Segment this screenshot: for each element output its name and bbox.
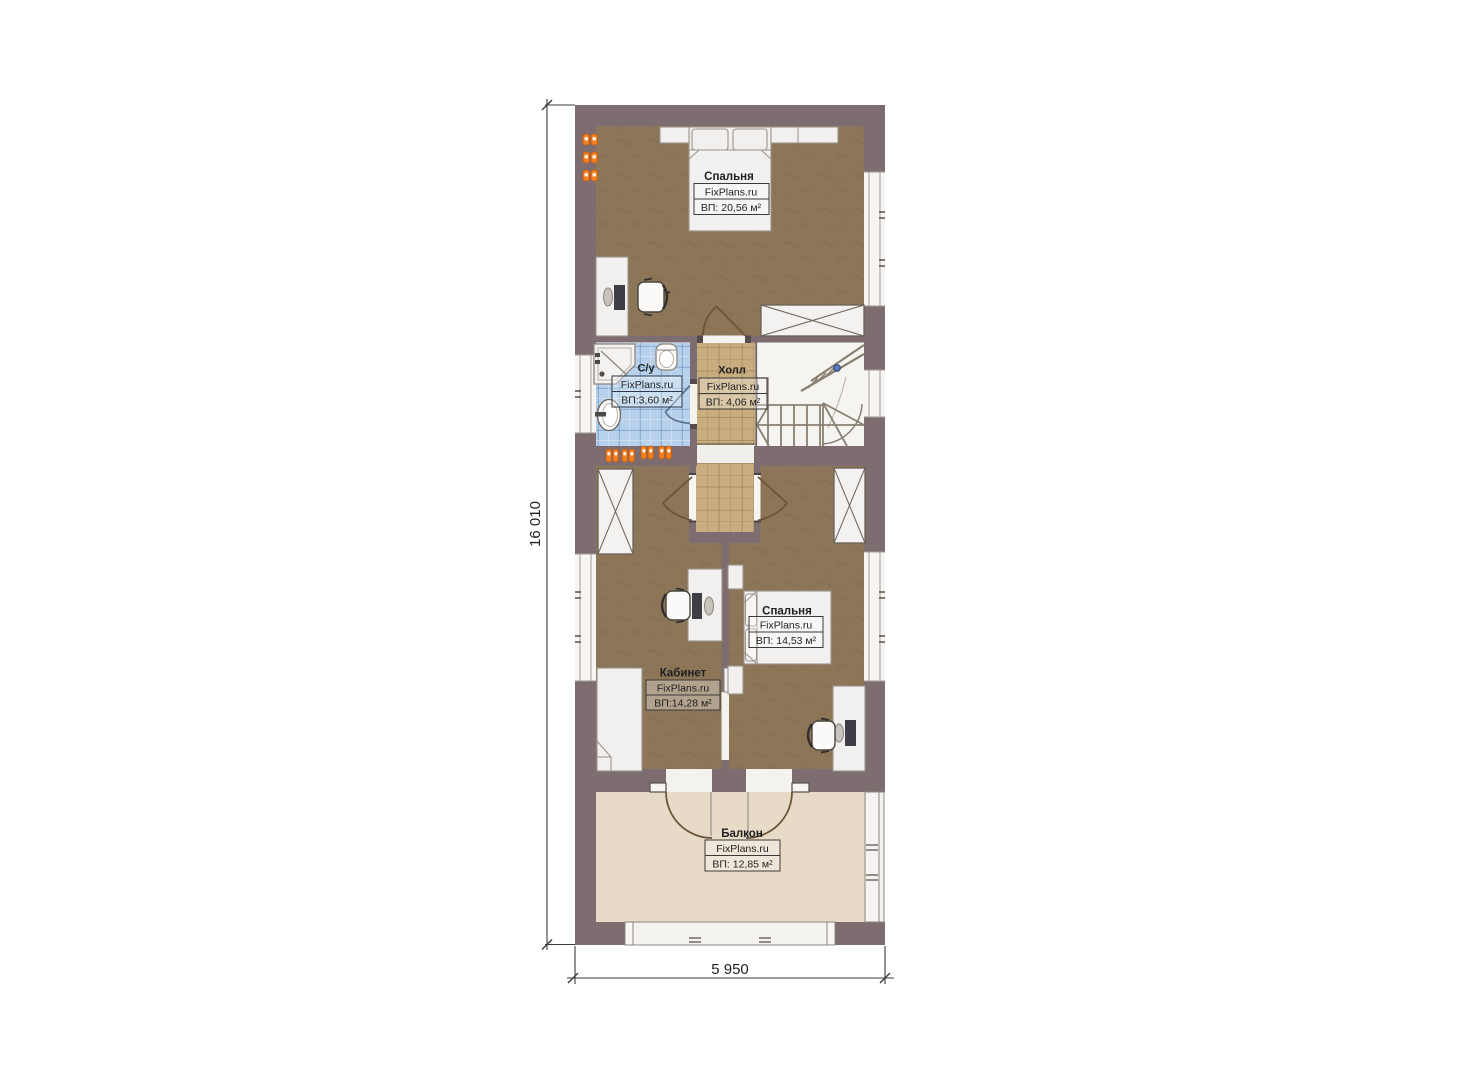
svg-text:ВП: 14,53 м²: ВП: 14,53 м² [756, 635, 817, 647]
svg-text:Балкон: Балкон [721, 828, 763, 840]
svg-text:5 950: 5 950 [711, 961, 749, 978]
svg-text:FixPlans.ru: FixPlans.ru [707, 381, 760, 393]
svg-text:16 010: 16 010 [527, 501, 544, 547]
svg-text:ВП:14,28 м²: ВП:14,28 м² [654, 698, 712, 710]
svg-text:Кабинет: Кабинет [660, 668, 707, 680]
svg-text:ВП: 12,85 м²: ВП: 12,85 м² [712, 859, 773, 871]
svg-text:FixPlans.ru: FixPlans.ru [705, 187, 758, 199]
svg-text:FixPlans.ru: FixPlans.ru [760, 620, 813, 632]
svg-text:Спальня: Спальня [762, 606, 812, 618]
svg-text:ВП: 4,06 м²: ВП: 4,06 м² [706, 397, 761, 409]
svg-text:FixPlans.ru: FixPlans.ru [716, 843, 769, 855]
svg-text:Спальня: Спальня [704, 171, 754, 183]
svg-text:FixPlans.ru: FixPlans.ru [621, 379, 674, 391]
svg-text:ВП: 20,56 м²: ВП: 20,56 м² [701, 202, 762, 214]
svg-text:С/у: С/у [637, 363, 655, 375]
svg-text:FixPlans.ru: FixPlans.ru [657, 683, 710, 695]
svg-text:ВП:3,60 м²: ВП:3,60 м² [621, 395, 673, 407]
svg-text:Холл: Холл [718, 365, 746, 377]
